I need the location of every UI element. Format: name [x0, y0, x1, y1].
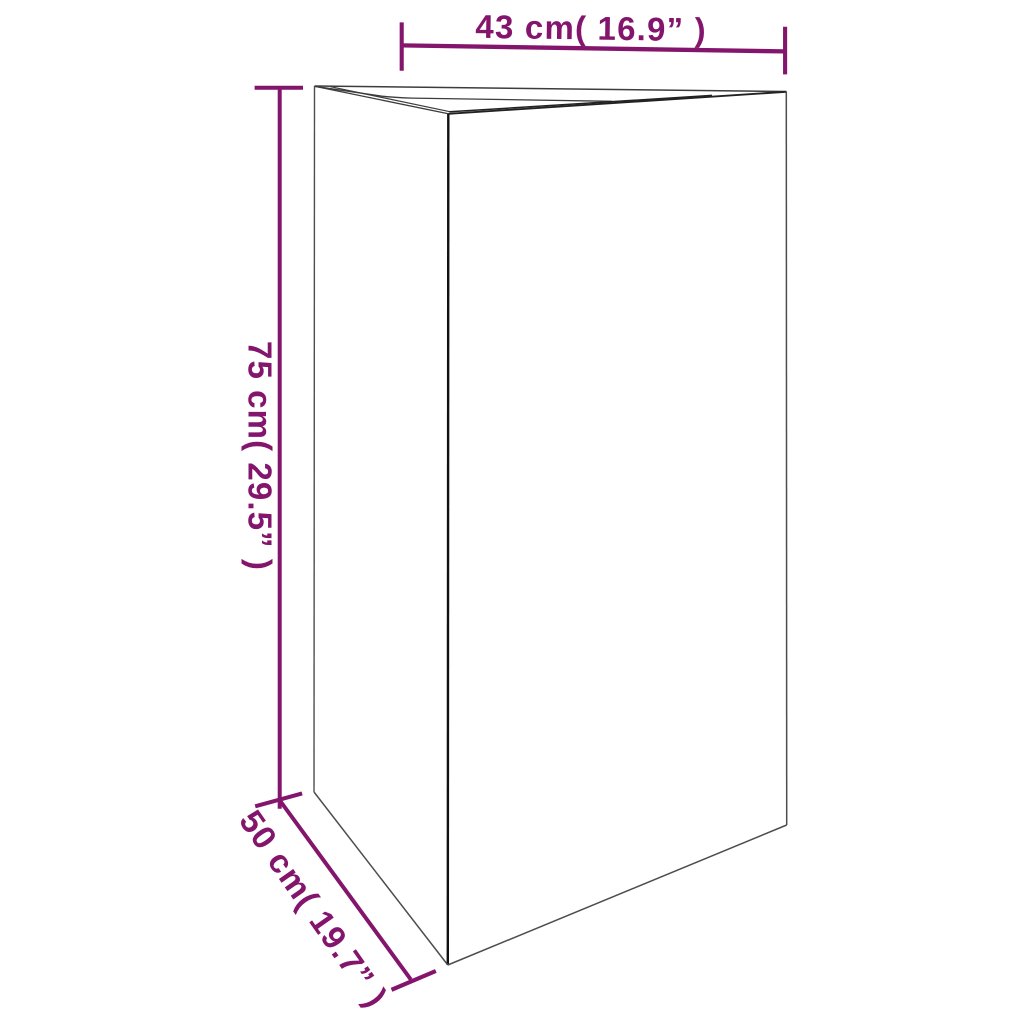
svg-text:43 cm( 16.9” ): 43 cm( 16.9” )	[475, 8, 707, 48]
svg-text:50 cm( 19.7” ): 50 cm( 19.7” )	[232, 803, 395, 1014]
svg-text:75 cm( 29.5” ): 75 cm( 29.5” )	[242, 341, 279, 571]
